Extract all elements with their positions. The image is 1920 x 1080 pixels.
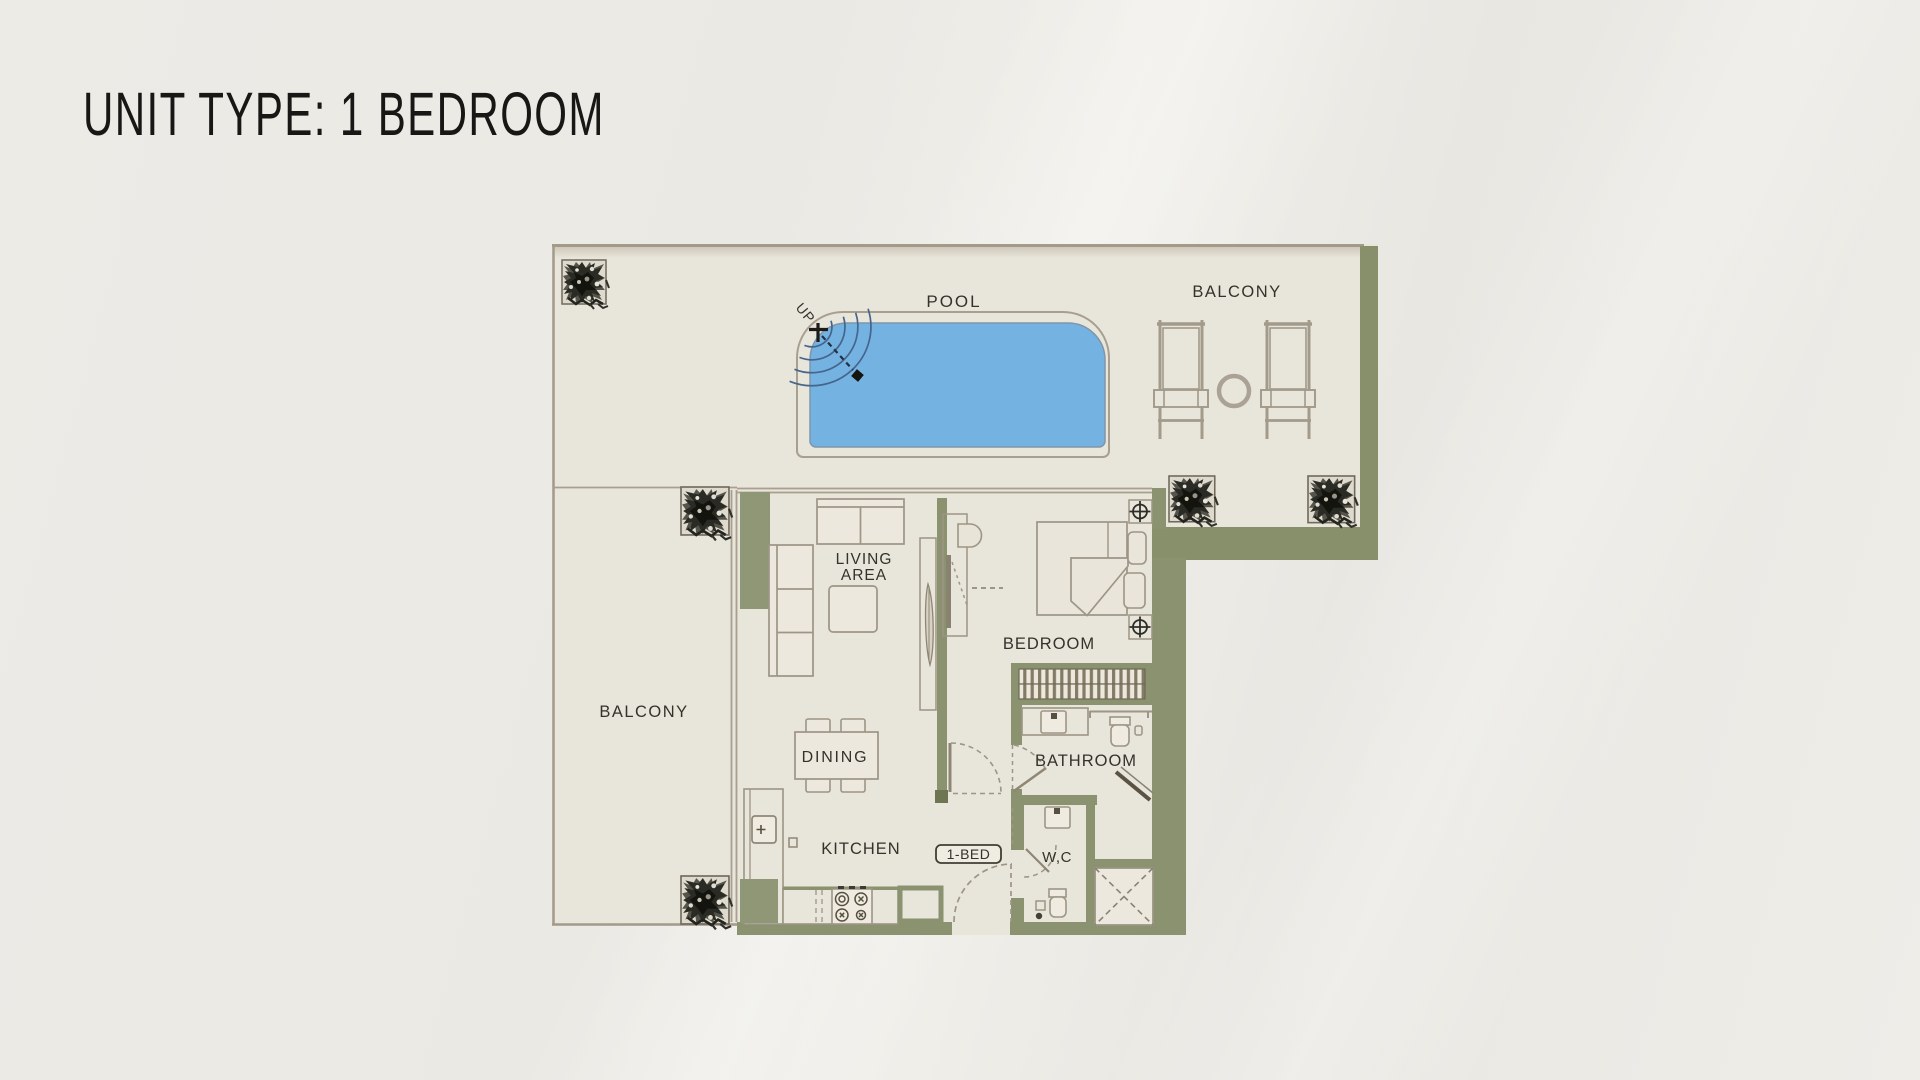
svg-text:KITCHEN: KITCHEN — [821, 840, 900, 858]
svg-text:BALCONY: BALCONY — [1192, 283, 1281, 301]
svg-text:BALCONY: BALCONY — [599, 703, 688, 721]
svg-text:POOL: POOL — [926, 292, 981, 311]
svg-text:W,C: W,C — [1042, 849, 1072, 866]
svg-text:AREA: AREA — [841, 567, 887, 584]
svg-text:BATHROOM: BATHROOM — [1035, 752, 1137, 770]
svg-text:LIVING: LIVING — [836, 551, 893, 568]
svg-text:BEDROOM: BEDROOM — [1003, 635, 1095, 653]
svg-text:1-BED: 1-BED — [947, 846, 991, 862]
svg-text:DINING: DINING — [802, 749, 869, 766]
